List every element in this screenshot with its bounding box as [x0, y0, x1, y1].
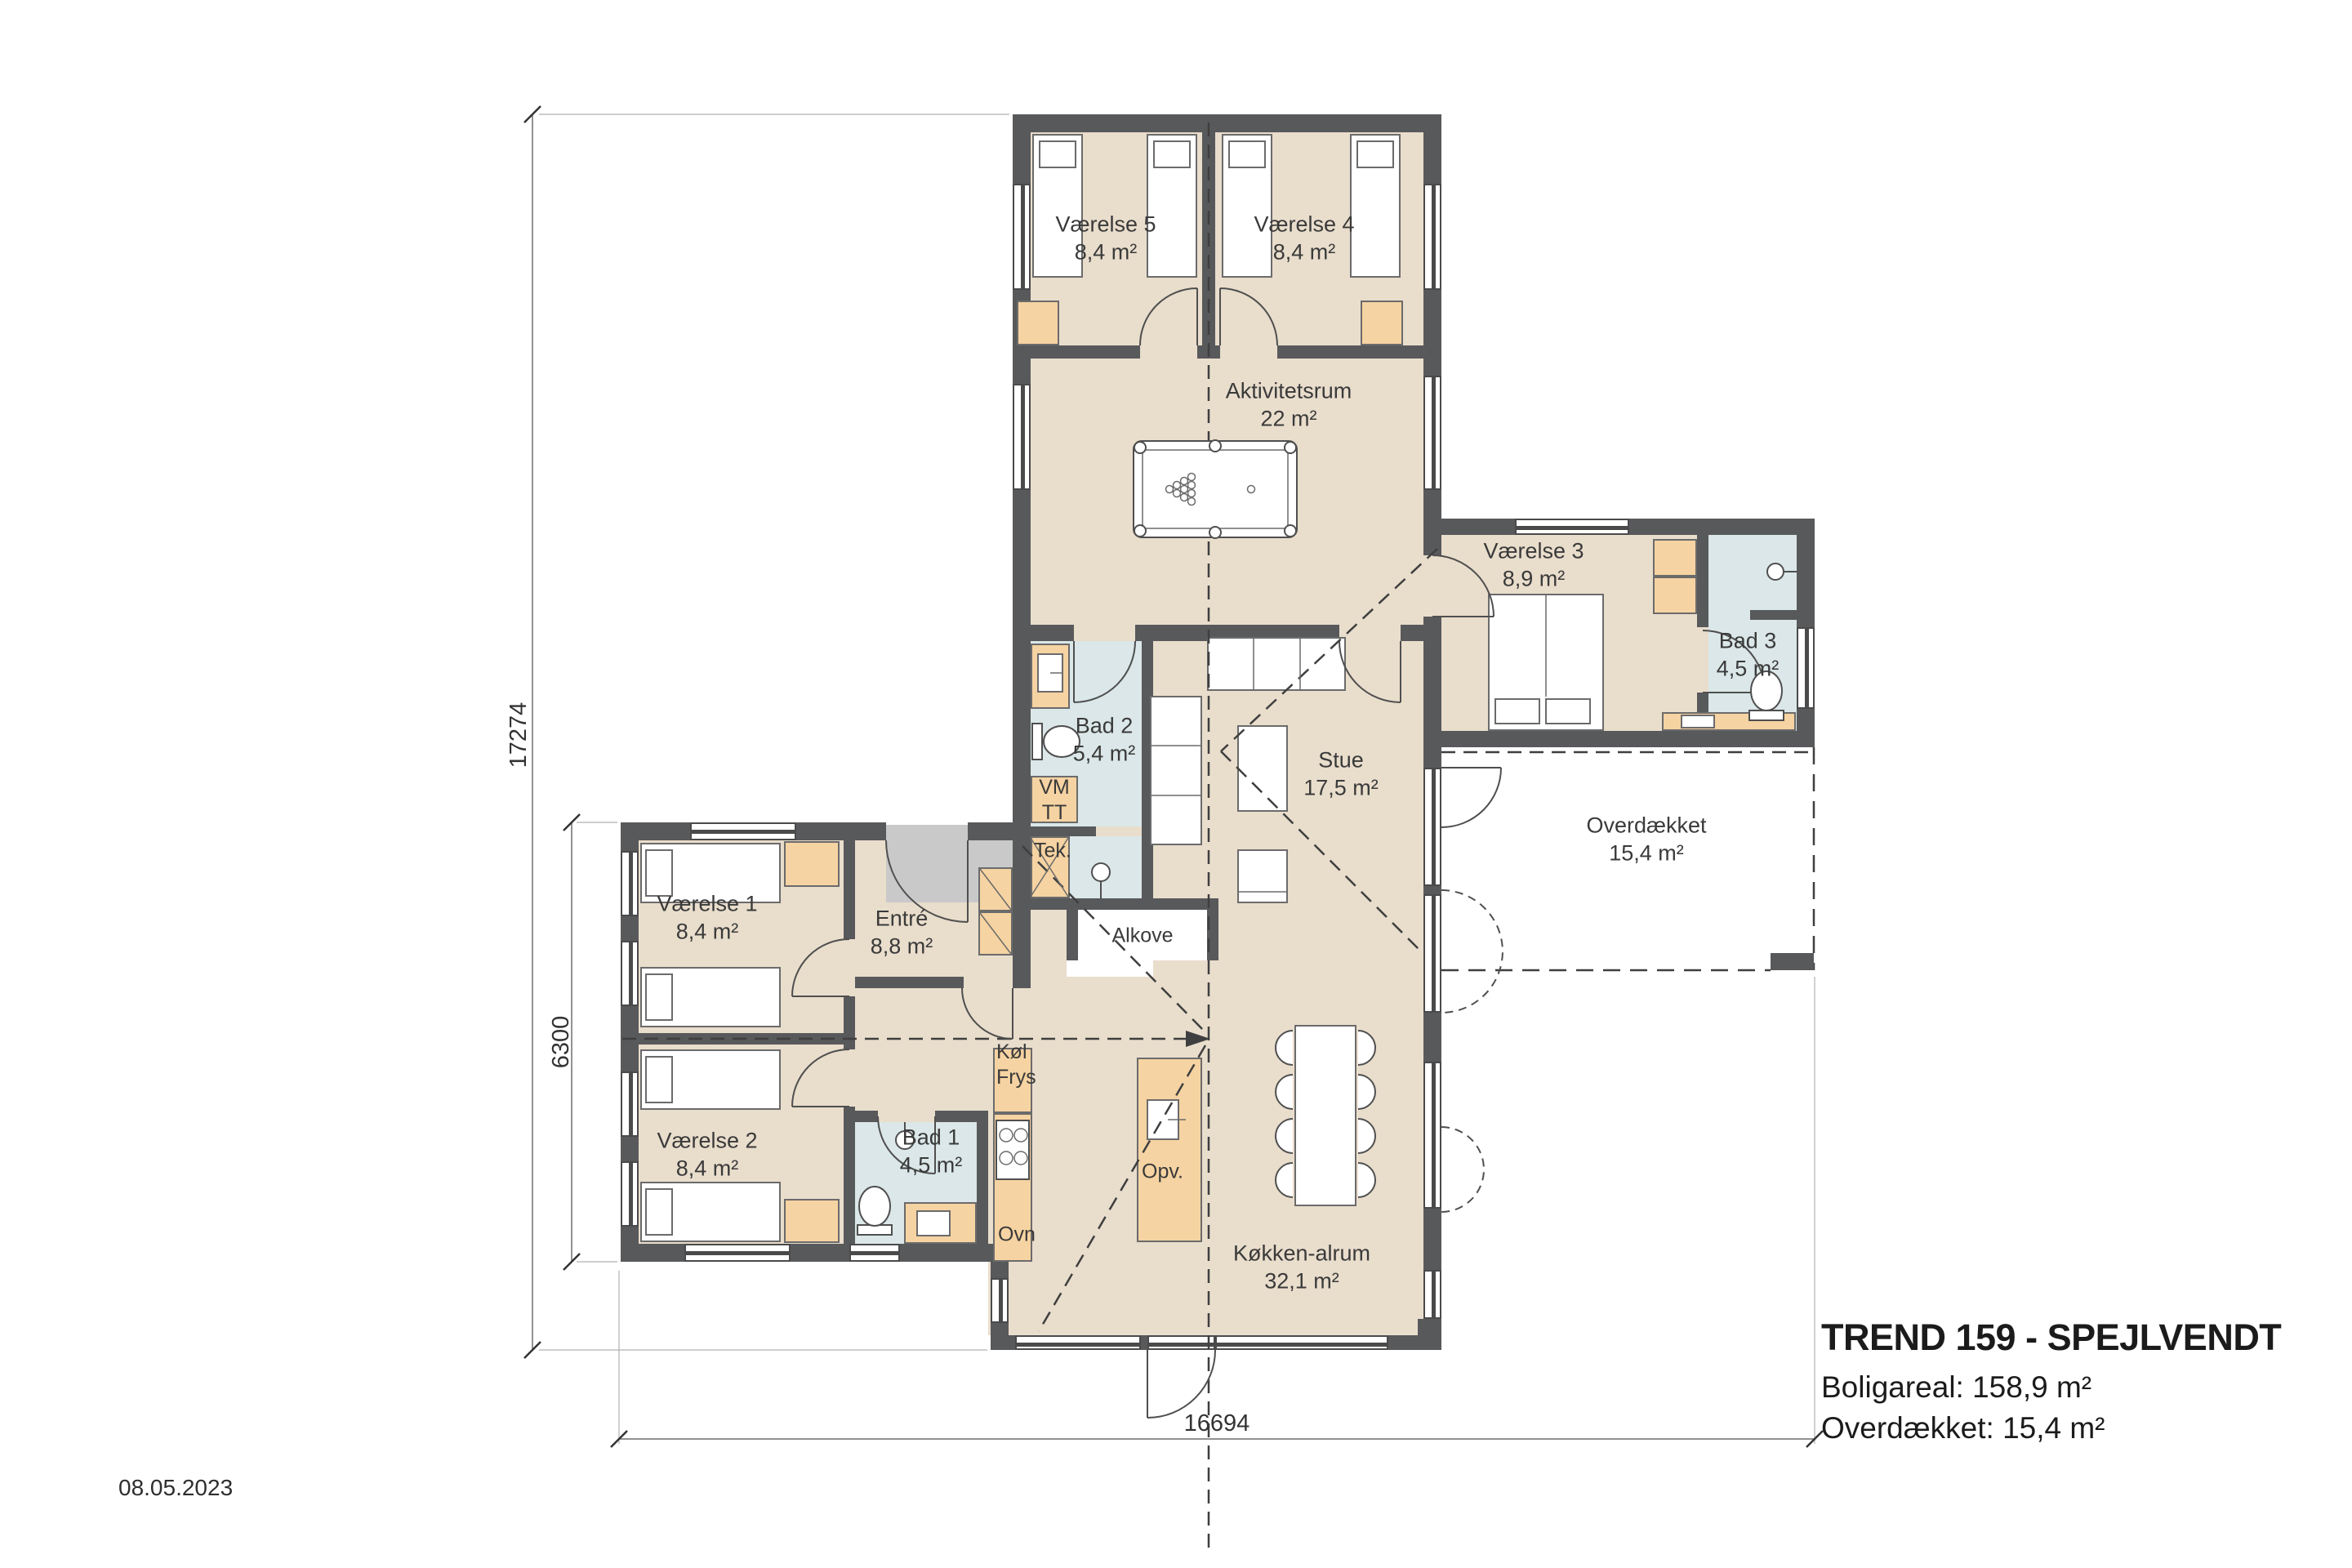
dining-chairs	[1276, 1031, 1375, 1197]
label-tek: Tek.	[1034, 838, 1071, 863]
toilet-bad1	[857, 1187, 892, 1235]
covered-area-line: Overdækket: 15,4 m²	[1821, 1411, 2281, 1445]
room-label-vaerelse2: Værelse 28,4 m²	[657, 1127, 757, 1183]
label-koel-frys: KølFrys	[996, 1040, 1036, 1091]
dimension-total-width: 16694	[1184, 1410, 1250, 1437]
label-alkove: Alkove	[1111, 923, 1173, 948]
label-opv: Opv.	[1142, 1159, 1183, 1184]
room-label-vaerelse1: Værelse 18,4 m²	[657, 890, 757, 946]
room-label-vaerelse4: Værelse 48,4 m²	[1254, 211, 1354, 266]
title-block: TREND 159 - SPEJLVENDT Boligareal: 158,9…	[1821, 1316, 2281, 1445]
room-label-bad3: Bad 34,5 m²	[1717, 627, 1780, 683]
room-label-overdaekket: Overdækket15,4 m²	[1586, 812, 1706, 867]
living-area-line: Boligareal: 158,9 m²	[1821, 1370, 2281, 1405]
cooktop	[996, 1120, 1029, 1179]
dimension-left-wing: 6300	[548, 1016, 574, 1069]
plan-title: TREND 159 - SPEJLVENDT	[1821, 1316, 2281, 1359]
floor-drain-tek	[1092, 863, 1110, 898]
label-vm-tt: VMTT	[1039, 775, 1070, 826]
floor-plan-page: 17274 6300 16694 Værelse 58,4 m² Værelse…	[0, 0, 2352, 1568]
shower-head-bad3	[1767, 563, 1797, 580]
room-label-koekken: Køkken-alrum32,1 m²	[1233, 1240, 1370, 1295]
dimension-lines: 17274 6300 16694	[506, 106, 1823, 1447]
room-label-vaerelse5: Værelse 58,4 m²	[1055, 211, 1156, 266]
room-label-bad1: Bad 14,5 m²	[900, 1124, 963, 1179]
label-ovn: Ovn	[998, 1222, 1036, 1247]
date-stamp: 08.05.2023	[118, 1475, 233, 1501]
billiard-table	[1134, 440, 1297, 538]
terrace-pillar	[1771, 953, 1814, 970]
room-label-aktivitetsrum: Aktivitetsrum22 m²	[1226, 377, 1352, 433]
room-label-vaerelse3: Værelse 38,9 m²	[1483, 537, 1584, 593]
room-label-entre: Entré8,8 m²	[871, 905, 933, 960]
room-label-stue: Stue17,5 m²	[1303, 746, 1379, 802]
dimension-total-height: 17274	[506, 702, 532, 768]
room-label-bad2: Bad 25,4 m²	[1073, 712, 1136, 768]
